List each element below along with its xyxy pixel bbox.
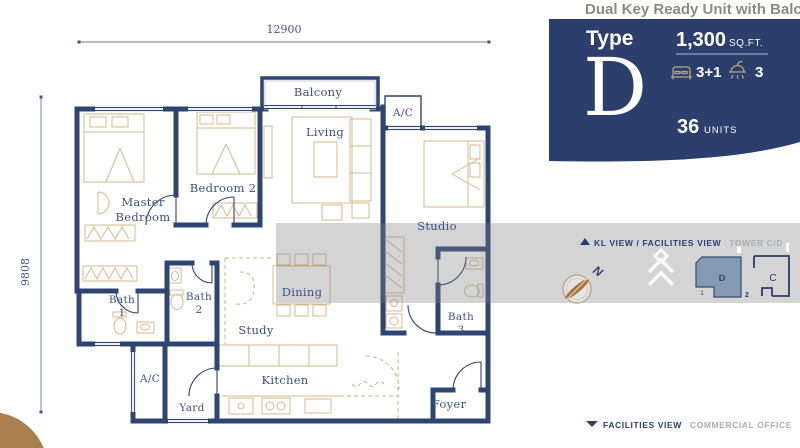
panel-area-value: 1,300 bbox=[676, 29, 726, 51]
footer-sub-label: COMMERCIAL OFFICE bbox=[690, 420, 792, 430]
panel-type-letter: D bbox=[583, 41, 647, 134]
dimension-height-value: 9808 bbox=[19, 258, 32, 286]
keyplan-tower-d-label: D bbox=[719, 273, 726, 283]
label-yard: Yard bbox=[178, 402, 204, 414]
label-ac-left: A/C bbox=[139, 373, 160, 385]
svg-text:2: 2 bbox=[196, 304, 203, 316]
svg-text:3: 3 bbox=[458, 324, 465, 336]
band-view-label: KL VIEW / FACILITIES VIEW bbox=[594, 238, 722, 248]
label-ac-top: A/C bbox=[392, 107, 413, 119]
label-studio: Studio bbox=[417, 219, 457, 233]
floorplan-brochure-page: 12900 9808 bbox=[0, 0, 800, 448]
triangle-down-icon bbox=[586, 421, 598, 427]
dimension-left: 9808 bbox=[19, 96, 43, 414]
panel-units-count: 36 bbox=[677, 116, 699, 138]
unit-info-panel: Dual Key Ready Unit with Balcony Type D … bbox=[549, 1, 800, 161]
keyplan-unit2-label: 2 bbox=[745, 292, 749, 299]
dimension-width-value: 12900 bbox=[267, 23, 302, 36]
label-bath3: Bath bbox=[448, 311, 474, 323]
label-dining: Dining bbox=[282, 285, 323, 299]
facilities-caption: FACILITIES VIEW COMMERCIAL OFFICE bbox=[586, 420, 792, 430]
label-bath1: Bath bbox=[109, 294, 135, 306]
keyplan-tower-c-label: C bbox=[769, 273, 776, 284]
panel-bed-count: 3+1 bbox=[696, 64, 721, 81]
label-balcony: Balcony bbox=[294, 85, 343, 99]
label-study: Study bbox=[238, 323, 273, 337]
panel-area-unit: SQ.FT. bbox=[729, 38, 763, 49]
svg-text:Bedroom: Bedroom bbox=[116, 210, 171, 224]
panel-title: Dual Key Ready Unit with Balcony bbox=[585, 1, 800, 18]
svg-text:1: 1 bbox=[119, 307, 126, 319]
label-living: Living bbox=[306, 125, 344, 139]
panel-bath-count: 3 bbox=[755, 64, 763, 81]
label-kitchen: Kitchen bbox=[261, 373, 308, 387]
label-master-bedroom: Master bbox=[121, 195, 164, 209]
svg-text:FACILITIES VIEW COMMERCI: FACILITIES VIEW COMMERCIAL OFFICE bbox=[603, 420, 792, 430]
label-foyer: Foyer bbox=[432, 397, 467, 411]
panel-units-label: UNITS bbox=[704, 125, 738, 136]
footer-view-label: FACILITIES VIEW bbox=[603, 420, 682, 430]
dimension-top: 12900 bbox=[78, 23, 491, 44]
label-bath2: Bath bbox=[186, 291, 212, 303]
label-bedroom2: Bedroom 2 bbox=[190, 181, 257, 195]
svg-text:KL VIEW / FACILITIES VIEW: KL VIEW / FACILITIES VIEW TOWER C/D bbox=[594, 238, 783, 248]
corner-decoration bbox=[0, 412, 48, 448]
keyplan-unit1-label: 1 bbox=[700, 290, 704, 297]
